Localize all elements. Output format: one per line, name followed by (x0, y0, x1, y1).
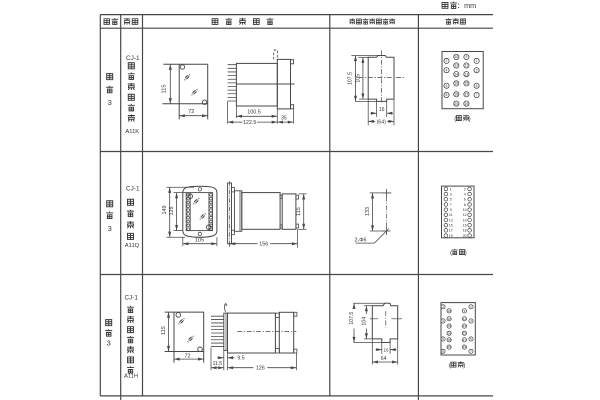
svg-text:1: 1 (450, 187, 452, 191)
svg-text:12: 12 (447, 317, 451, 321)
svg-text:9: 9 (450, 208, 452, 212)
svg-text:14: 14 (463, 218, 467, 222)
svg-text:10: 10 (454, 55, 458, 59)
svg-text:19: 19 (449, 234, 453, 238)
svg-text:8: 8 (446, 93, 448, 97)
svg-text:125: 125 (169, 207, 175, 216)
svg-text:115: 115 (296, 207, 302, 216)
svg-text:115: 115 (161, 85, 167, 94)
svg-text:9: 9 (465, 55, 467, 59)
svg-text:2: 2 (446, 59, 448, 63)
svg-text:105: 105 (355, 74, 361, 83)
svg-text:(64): (64) (377, 119, 386, 125)
svg-text:11: 11 (465, 64, 469, 68)
svg-text:): ) (469, 115, 471, 122)
svg-text:107.5: 107.5 (349, 312, 355, 325)
svg-text:18: 18 (447, 338, 451, 342)
svg-text:3: 3 (108, 98, 112, 107)
svg-text:12: 12 (463, 213, 467, 217)
svg-text:5: 5 (450, 198, 452, 202)
svg-text:17: 17 (463, 338, 467, 342)
svg-text:7: 7 (476, 93, 478, 97)
svg-text:13: 13 (465, 72, 469, 76)
svg-text:15: 15 (465, 82, 469, 86)
svg-text:2-Φ6: 2-Φ6 (354, 238, 366, 244)
svg-text:35: 35 (281, 116, 287, 122)
svg-text:): ) (463, 362, 465, 369)
svg-text:104: 104 (362, 317, 368, 326)
svg-text:2: 2 (464, 187, 466, 191)
svg-text:8: 8 (464, 203, 466, 207)
svg-text:CJ-1: CJ-1 (126, 55, 140, 62)
svg-text:19: 19 (463, 345, 467, 349)
svg-text:3: 3 (450, 192, 452, 196)
svg-text:6: 6 (464, 198, 466, 202)
svg-text:15: 15 (463, 331, 467, 335)
svg-text:105: 105 (195, 238, 204, 244)
svg-text:10: 10 (463, 208, 467, 212)
svg-text:149: 149 (162, 206, 168, 215)
svg-text:5: 5 (476, 84, 478, 88)
svg-text:18: 18 (463, 229, 467, 233)
svg-text:1: 1 (476, 59, 478, 63)
svg-text:16: 16 (454, 82, 458, 86)
svg-text:133: 133 (365, 207, 371, 216)
svg-text:3: 3 (108, 224, 112, 233)
svg-text:13: 13 (449, 218, 453, 222)
svg-text:17: 17 (465, 93, 469, 97)
svg-text:126: 126 (256, 366, 265, 372)
svg-text:A11K: A11K (125, 129, 139, 135)
svg-text:15: 15 (449, 224, 453, 228)
svg-text:72: 72 (188, 109, 194, 115)
svg-text:11: 11 (449, 213, 453, 217)
svg-text:12: 12 (454, 64, 458, 68)
svg-text:4: 4 (446, 68, 448, 72)
svg-text:100.5: 100.5 (247, 109, 261, 115)
svg-text:A11H: A11H (124, 373, 138, 379)
svg-text:): ) (465, 249, 467, 256)
svg-text:13: 13 (463, 324, 467, 328)
svg-text:11.5: 11.5 (213, 361, 223, 367)
svg-text:19: 19 (465, 102, 469, 106)
svg-text:17: 17 (449, 229, 453, 233)
svg-text:14: 14 (447, 324, 451, 328)
svg-text:18: 18 (454, 93, 458, 97)
svg-text:64: 64 (381, 356, 387, 362)
svg-text:156: 156 (259, 242, 268, 248)
svg-text:10: 10 (447, 309, 451, 313)
svg-text:6: 6 (446, 84, 448, 88)
svg-text:115: 115 (161, 326, 167, 335)
svg-text:20: 20 (447, 345, 451, 349)
svg-text:122.5: 122.5 (243, 120, 257, 126)
svg-text:11: 11 (463, 317, 466, 321)
svg-text:9.5: 9.5 (237, 356, 244, 362)
svg-text:16: 16 (379, 107, 385, 113)
svg-text:16: 16 (463, 224, 467, 228)
svg-text:：mm: ：mm (457, 1, 476, 10)
svg-text:7: 7 (450, 203, 452, 207)
svg-text:107.5: 107.5 (348, 72, 354, 85)
svg-text:14: 14 (454, 72, 458, 76)
svg-text:3: 3 (107, 339, 111, 348)
svg-text:CJ-1: CJ-1 (126, 186, 140, 193)
svg-text:4: 4 (464, 192, 466, 196)
svg-text:3: 3 (476, 68, 478, 72)
svg-text:72: 72 (185, 353, 191, 359)
svg-text:20: 20 (463, 234, 467, 238)
svg-text:A11Q: A11Q (125, 243, 140, 249)
svg-text:20: 20 (454, 102, 458, 106)
svg-text:CJ-1: CJ-1 (124, 295, 138, 302)
svg-text:16: 16 (447, 331, 451, 335)
svg-text:16: 16 (383, 348, 389, 353)
